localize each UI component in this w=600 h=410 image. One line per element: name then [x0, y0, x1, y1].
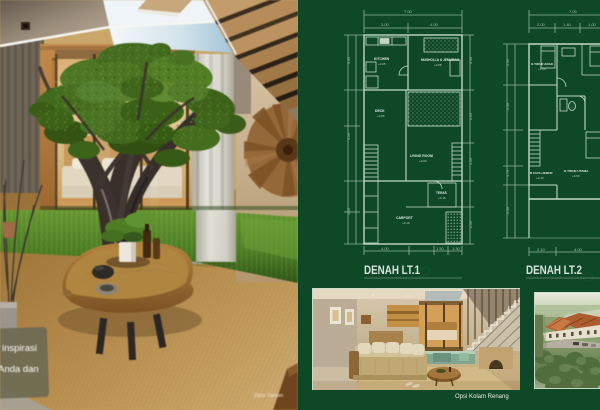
svg-text:1.30: 1.30 — [452, 246, 461, 251]
svg-text:inspirasi: inspirasi — [2, 343, 37, 354]
svg-text:2.10: 2.10 — [537, 247, 546, 252]
svg-text:1.50: 1.50 — [436, 246, 445, 251]
svg-text:+0.10: +0.10 — [402, 221, 410, 225]
svg-text:DECK: DECK — [375, 109, 385, 113]
svg-text:1.00: 1.00 — [588, 22, 597, 27]
svg-text:DENAH LT.1: DENAH LT.1 — [364, 263, 420, 277]
svg-text:3.00: 3.00 — [381, 22, 390, 27]
svg-text:+0.05: +0.05 — [434, 63, 442, 67]
svg-text:DENAH LT.2: DENAH LT.2 — [526, 263, 582, 277]
svg-text:1.40: 1.40 — [563, 22, 572, 27]
svg-text:K.TIDUR UTAMA: K.TIDUR UTAMA — [564, 169, 589, 173]
svg-text:4.00: 4.00 — [347, 208, 351, 215]
svg-text:MUSHOLLA & JEMURAN: MUSHOLLA & JEMURAN — [421, 58, 459, 62]
svg-text:1.70: 1.70 — [506, 170, 510, 177]
svg-text:R.CUCI+JEMUR: R.CUCI+JEMUR — [530, 171, 553, 175]
svg-text:+0.05: +0.05 — [377, 114, 385, 118]
svg-text:2.00: 2.00 — [537, 22, 546, 27]
svg-text:+3.50: +3.50 — [572, 174, 580, 178]
svg-text:CARPORT: CARPORT — [396, 216, 414, 220]
svg-text:TERAS: TERAS — [436, 191, 447, 195]
svg-text:1.50: 1.50 — [469, 158, 473, 165]
svg-text:2.00: 2.00 — [469, 113, 473, 120]
svg-text:Anda dan: Anda dan — [0, 364, 39, 375]
svg-text:+3.40: +3.40 — [536, 176, 544, 180]
svg-text:LIVING ROOM: LIVING ROOM — [410, 154, 433, 158]
svg-text:+0.00: +0.00 — [419, 159, 427, 163]
svg-text:3.00: 3.00 — [506, 207, 510, 214]
svg-text:7.00: 7.00 — [404, 9, 413, 14]
svg-text:3.00: 3.00 — [347, 57, 351, 64]
svg-text:4.00: 4.00 — [574, 247, 583, 252]
svg-text:3.00: 3.00 — [506, 103, 510, 110]
svg-text:4.00: 4.00 — [381, 246, 390, 251]
svg-text:2.50: 2.50 — [469, 221, 473, 228]
svg-text:1.50: 1.50 — [506, 59, 510, 66]
svg-text:Opsi Taman: Opsi Taman — [254, 393, 283, 399]
svg-text:KITCHEN: KITCHEN — [374, 57, 390, 61]
svg-text:3.00: 3.00 — [469, 57, 473, 64]
svg-text:+0.05: +0.05 — [378, 62, 386, 66]
svg-text:7.00: 7.00 — [569, 9, 578, 14]
svg-text:+3.50: +3.50 — [538, 67, 546, 71]
svg-text:3.50: 3.50 — [347, 133, 351, 140]
svg-text:+0.15: +0.15 — [438, 196, 446, 200]
svg-text:4.00: 4.00 — [430, 22, 439, 27]
svg-text:K.TIDUR ANAK: K.TIDUR ANAK — [531, 62, 554, 66]
